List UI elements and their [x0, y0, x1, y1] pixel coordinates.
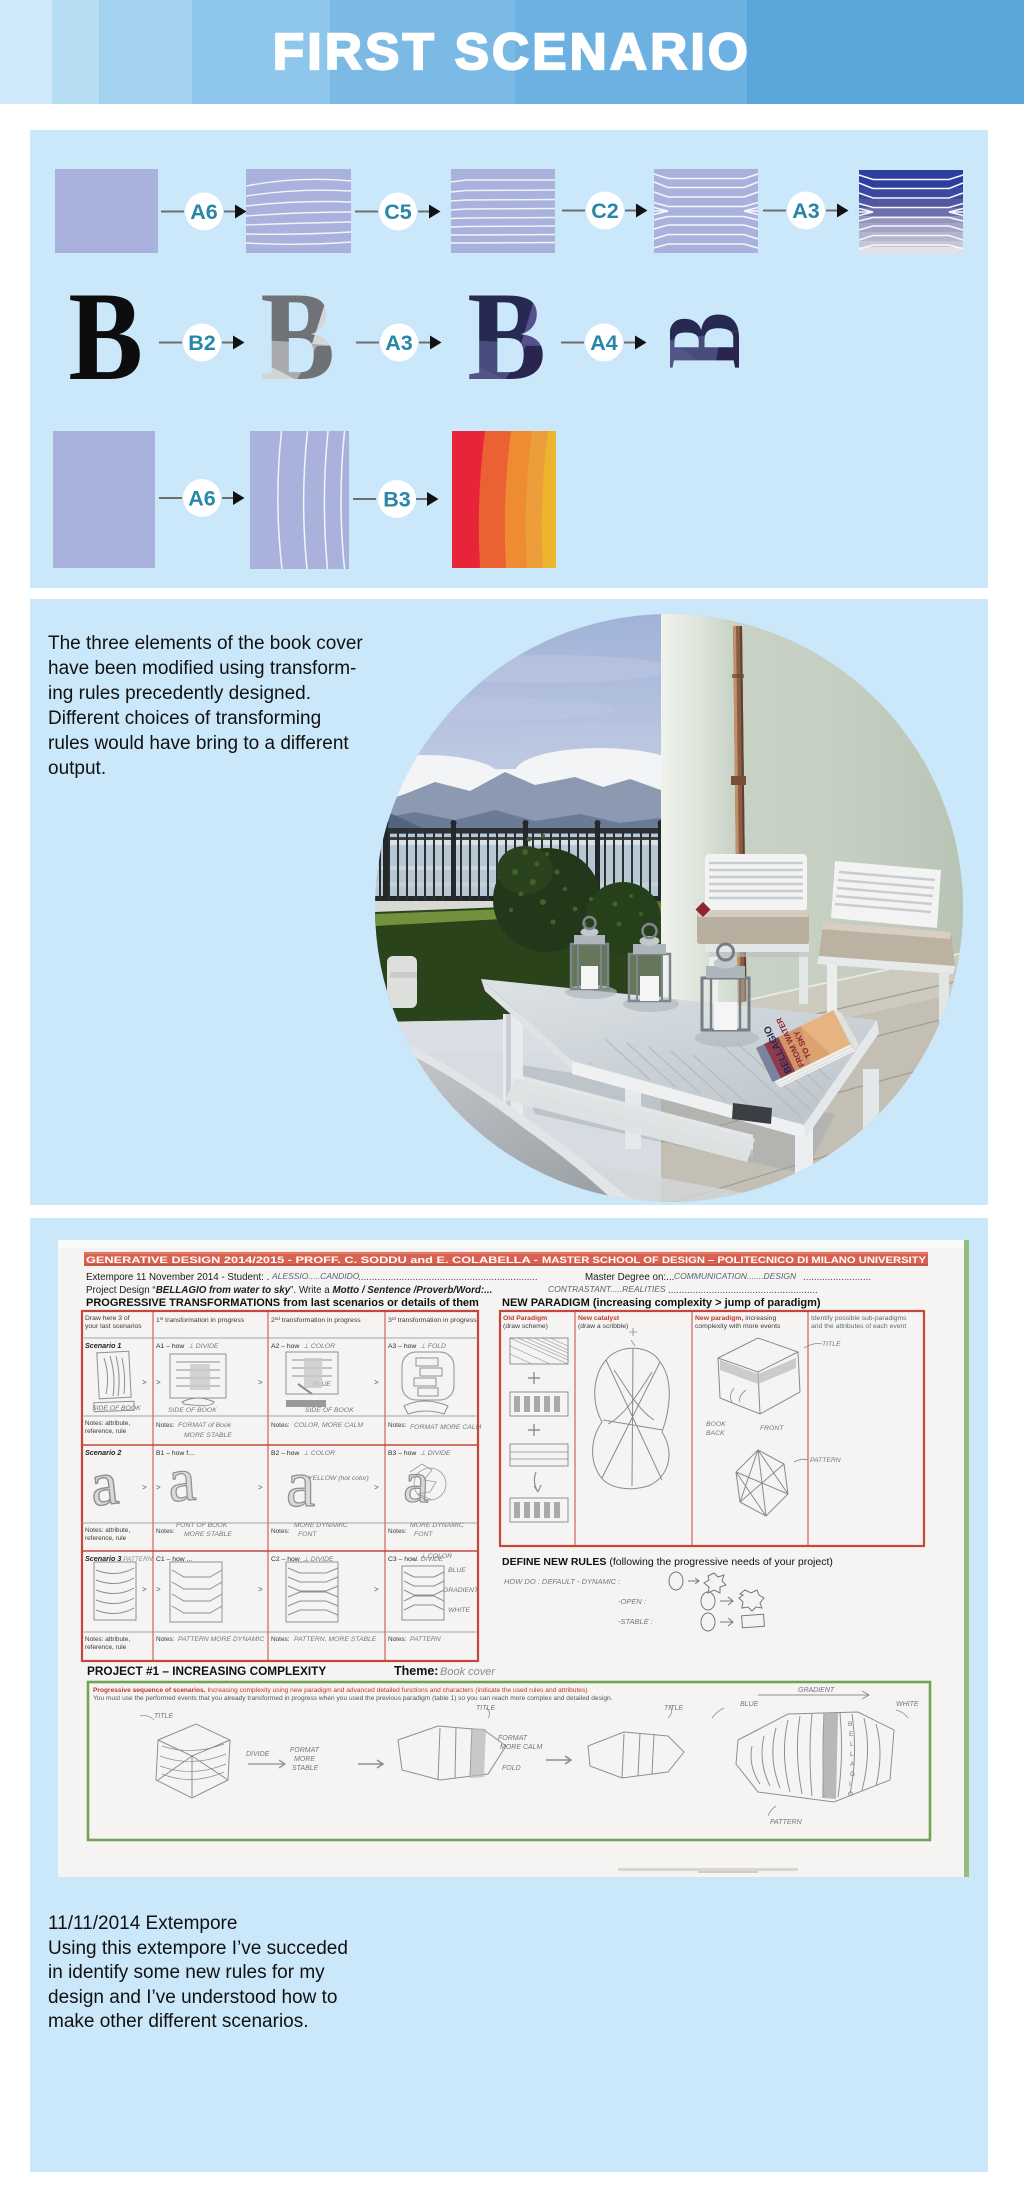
svg-text:SIDE OF BOOK: SIDE OF BOOK [168, 1407, 217, 1414]
svg-text:Notes:: Notes: [271, 1528, 290, 1535]
svg-text:A3: A3 [385, 331, 413, 355]
svg-text:A1 – how: A1 – how [156, 1343, 184, 1350]
svg-text:reference, rule: reference, rule [85, 1535, 127, 1542]
svg-text:New catalyst: New catalyst [578, 1315, 620, 1322]
svg-text:FONT: FONT [298, 1531, 317, 1538]
svg-text:G: G [850, 1771, 855, 1778]
svg-text:I: I [849, 1781, 851, 1788]
svg-text:B: B [848, 1721, 852, 1728]
svg-text:Notes: attribute,: Notes: attribute, [85, 1527, 130, 1534]
svg-text:>: > [156, 1483, 161, 1492]
svg-text:Notes:: Notes: [156, 1636, 175, 1643]
svg-text:Extempore 11 November 2014 -: Extempore 11 November 2014 - Student: . [86, 1272, 269, 1283]
svg-text:.........................: ......................... [803, 1272, 871, 1283]
svg-text:BACK: BACK [706, 1430, 725, 1437]
svg-text:MORE DYNAMIC: MORE DYNAMIC [294, 1522, 348, 1529]
svg-text:MASTER SCHOOL OF DESIGN – POLI: MASTER SCHOOL OF DESIGN – POLITECNICO DI… [542, 1255, 927, 1266]
svg-text:a: a [286, 1448, 315, 1521]
svg-text:Notes:: Notes: [156, 1528, 175, 1535]
svg-text:FORMAT: FORMAT [498, 1735, 528, 1742]
svg-text:MORE CALM: MORE CALM [500, 1744, 543, 1751]
svg-text:Master Degree on:...: Master Degree on:... [585, 1272, 674, 1283]
svg-text:DEFINE NEW RULES (following th: DEFINE NEW RULES (following the progress… [502, 1556, 833, 1568]
svg-text:GRADIENT: GRADIENT [798, 1687, 835, 1694]
svg-text:FONT OF BOOK: FONT OF BOOK [176, 1522, 228, 1529]
svg-text:BOOK: BOOK [706, 1421, 726, 1428]
svg-text:>: > [374, 1585, 379, 1594]
svg-text:Theme:: Theme: [394, 1664, 438, 1678]
svg-text:L: L [850, 1751, 854, 1758]
svg-text:TITLE: TITLE [664, 1705, 683, 1712]
svg-text:GRADIENT: GRADIENT [443, 1587, 479, 1594]
svg-text:COLOR, MORE CALM: COLOR, MORE CALM [294, 1422, 363, 1429]
svg-text:Book cover: Book cover [440, 1666, 496, 1678]
svg-text:Old Paradigm: Old Paradigm [503, 1315, 547, 1322]
svg-text:PATTERN MORE DYNAMIC: PATTERN MORE DYNAMIC [178, 1636, 264, 1643]
svg-text:ALESSIO.....CANDIDO: ALESSIO.....CANDIDO [271, 1271, 360, 1281]
svg-text:-OPEN :: -OPEN : [618, 1597, 646, 1606]
svg-text:Progressive sequence of scenar: Progressive sequence of scenarios. Incre… [93, 1687, 587, 1694]
svg-text:BLUE: BLUE [448, 1567, 466, 1574]
svg-text:TITLE: TITLE [822, 1341, 841, 1348]
svg-text:⊥ DIVIDE: ⊥ DIVIDE [188, 1343, 219, 1350]
svg-text:and the attributes of each eve: and the attributes of each event [811, 1323, 906, 1330]
svg-text:Scenario 1: Scenario 1 [85, 1341, 121, 1350]
svg-text:PROGRESSIVE TRANSFORMATIONS fr: PROGRESSIVE TRANSFORMATIONS from last sc… [86, 1297, 479, 1309]
svg-text:reference, rule: reference, rule [85, 1644, 127, 1651]
svg-text:FORMAT MORE CALM: FORMAT MORE CALM [410, 1424, 482, 1431]
svg-text:Notes:: Notes: [271, 1636, 290, 1643]
svg-text:L: L [850, 1741, 854, 1748]
svg-text:complexity with more events: complexity with more events [695, 1323, 781, 1330]
svg-text:FORMAT: FORMAT [290, 1747, 320, 1754]
svg-text:Project Design “BELLAGIO from: Project Design “BELLAGIO from water to s… [86, 1285, 492, 1296]
svg-text:STABLE: STABLE [292, 1765, 319, 1772]
svg-text:(draw a scribble): (draw a scribble) [578, 1323, 628, 1330]
svg-text:PATTERN: PATTERN [770, 1819, 803, 1826]
svg-text:A6: A6 [190, 200, 218, 224]
svg-text:A3 – how: A3 – how [388, 1343, 416, 1350]
svg-text:MORE: MORE [294, 1756, 315, 1763]
svg-text:A6: A6 [188, 487, 216, 511]
svg-text:O: O [848, 1791, 853, 1798]
svg-text:C5: C5 [384, 200, 412, 224]
svg-text:⊥ COLOR: ⊥ COLOR [420, 1553, 452, 1560]
svg-text:>: > [142, 1483, 147, 1492]
svg-text:CONTRASTANT.....REALITIES: CONTRASTANT.....REALITIES [548, 1284, 666, 1294]
svg-text:Notes:: Notes: [156, 1422, 175, 1429]
svg-text:C2: C2 [591, 199, 619, 223]
svg-text:You must use the performed eve: You must use the performed events that y… [93, 1695, 613, 1702]
svg-text:MORE DYNAMIC: MORE DYNAMIC [410, 1522, 464, 1529]
svg-text:reference, rule: reference, rule [85, 1428, 127, 1435]
svg-text:DIVIDE: DIVIDE [246, 1751, 270, 1758]
svg-text:A2 – how: A2 – how [271, 1343, 299, 1350]
svg-text:Notes:: Notes: [388, 1528, 407, 1535]
svg-text:A3: A3 [792, 199, 820, 223]
svg-text:Notes: attribute,: Notes: attribute, [85, 1420, 130, 1427]
svg-text:..............................: ........................................… [668, 1285, 818, 1296]
svg-text:..............................: ........................................… [358, 1272, 538, 1283]
svg-text:>: > [258, 1483, 263, 1492]
svg-text:E: E [849, 1731, 854, 1738]
svg-text:COMMUNICATION.......DESIGN: COMMUNICATION.......DESIGN [674, 1271, 797, 1281]
svg-text:>: > [258, 1378, 263, 1387]
svg-text:3rd transformation in progress: 3rd transformation in progress [388, 1316, 477, 1324]
svg-text:Notes:: Notes: [388, 1422, 407, 1429]
svg-text:MORE STABLE: MORE STABLE [184, 1531, 232, 1538]
svg-text:HOW DO : DEFAULT - DYNAMIC: HOW DO : DEFAULT - DYNAMIC : [504, 1577, 620, 1586]
svg-text:>: > [142, 1585, 147, 1594]
svg-text:>: > [142, 1378, 147, 1387]
svg-text:(draw scheme): (draw scheme) [503, 1323, 548, 1330]
svg-text:Notes: attribute,: Notes: attribute, [85, 1636, 130, 1643]
svg-text:TITLE: TITLE [476, 1705, 495, 1712]
svg-text:A: A [850, 1761, 855, 1768]
svg-text:MORE STABLE: MORE STABLE [184, 1432, 232, 1439]
svg-text:B: B [68, 265, 143, 406]
svg-text:PATTERN: PATTERN [410, 1636, 441, 1643]
svg-text:FRONT: FRONT [760, 1425, 784, 1432]
svg-text:-STABLE :: -STABLE : [618, 1617, 653, 1626]
svg-text:NEW PARADIGM (increasing compl: NEW PARADIGM (increasing complexity > ju… [502, 1297, 821, 1309]
svg-text:PATTERN, MORE STABLE: PATTERN, MORE STABLE [294, 1636, 377, 1643]
svg-text:Draw here 3 of: Draw here 3 of [85, 1315, 130, 1322]
svg-text:GENERATIVE DESIGN 2014/2015 -: GENERATIVE DESIGN 2014/2015 - PROFF. C. … [86, 1255, 538, 1266]
svg-text:BLUE: BLUE [740, 1701, 759, 1708]
svg-text:Notes:: Notes: [271, 1422, 290, 1429]
svg-text:Identify possible sub-paradigm: Identify possible sub-paradigms [811, 1315, 907, 1322]
svg-text:WHITE: WHITE [448, 1607, 470, 1614]
svg-text:>: > [374, 1378, 379, 1387]
svg-text:a: a [402, 1449, 431, 1515]
svg-text:>: > [156, 1585, 161, 1594]
svg-text:PROJECT #1 – INCREASING COMPLE: PROJECT #1 – INCREASING COMPLEXITY [87, 1664, 326, 1678]
svg-text:>: > [374, 1483, 379, 1492]
svg-text:FOLD: FOLD [502, 1765, 521, 1772]
svg-text:Notes:: Notes: [388, 1636, 407, 1643]
svg-text:>: > [258, 1585, 263, 1594]
svg-text:PATTERN: PATTERN [810, 1457, 841, 1464]
svg-text:1st transformation in progress: 1st transformation in progress [156, 1316, 245, 1324]
svg-text:your last scenarios: your last scenarios [85, 1323, 142, 1330]
svg-text:FONT: FONT [414, 1531, 433, 1538]
svg-text:⊥ FOLD: ⊥ FOLD [420, 1343, 446, 1350]
svg-text:FORMAT of Book: FORMAT of Book [178, 1422, 232, 1429]
svg-text:B3: B3 [383, 488, 411, 512]
svg-text:>: > [156, 1378, 161, 1387]
svg-text:a: a [166, 1446, 198, 1516]
svg-text:New paradigm, increasing: New paradigm, increasing [695, 1315, 776, 1322]
svg-text:⊥ COLOR: ⊥ COLOR [303, 1343, 335, 1350]
svg-text:TITLE: TITLE [154, 1713, 173, 1720]
svg-text:B2: B2 [188, 331, 216, 355]
svg-text:WHITE: WHITE [896, 1701, 919, 1708]
svg-text:YELLOW (hot color): YELLOW (hot color) [308, 1475, 369, 1482]
svg-text:2nd transformation in progress: 2nd transformation in progress [271, 1316, 361, 1324]
svg-text:SIDE OF BOOK: SIDE OF BOOK [305, 1407, 354, 1414]
svg-text:A4: A4 [590, 331, 618, 355]
